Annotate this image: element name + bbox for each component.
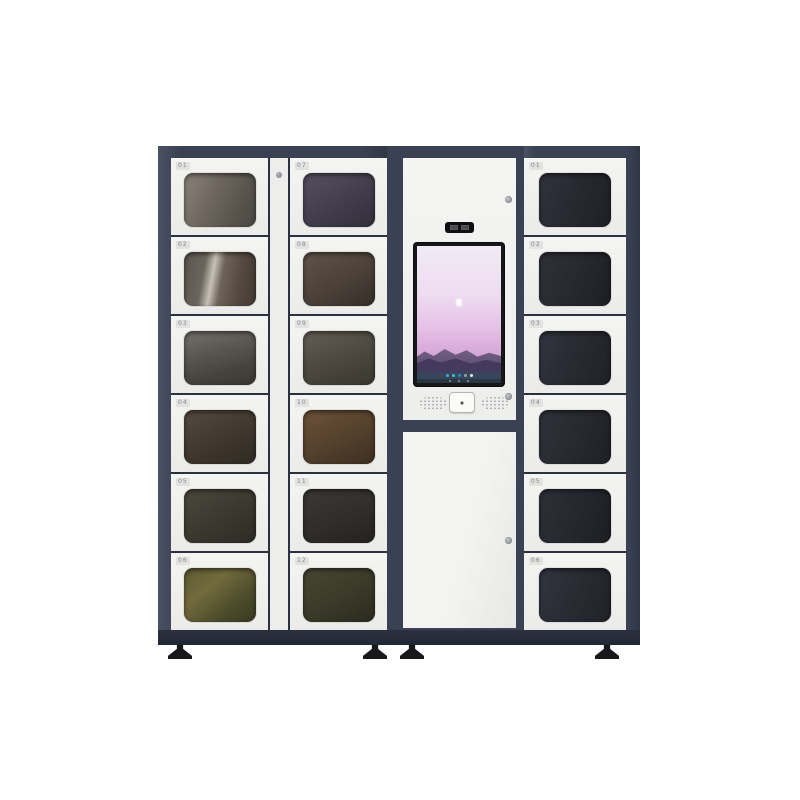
locker-number-label: 08 — [295, 241, 309, 249]
locker-number-label: 10 — [295, 399, 309, 407]
locker-door-02: 02 — [171, 235, 268, 314]
locker-door-09: 09 — [290, 314, 387, 393]
locker-column-b: 07 08 09 10 — [290, 158, 387, 630]
taskbar-app-icon — [470, 374, 473, 377]
adjustable-foot — [363, 645, 387, 659]
kiosk-service-door — [403, 432, 516, 628]
locker-column-a: 01 02 03 04 — [171, 158, 268, 630]
locker-glass-window — [303, 489, 375, 543]
locker-number-label: 07 — [295, 162, 309, 170]
screw-icon — [276, 172, 282, 178]
screen-navbar — [417, 379, 501, 383]
locker-glass-window — [539, 331, 611, 385]
locker-door-04: 04 — [171, 393, 268, 472]
locker-number-label: 01 — [529, 162, 543, 170]
locker-glass-window — [184, 489, 256, 543]
camera-module — [445, 222, 474, 233]
scanner-dot-icon — [461, 401, 464, 404]
locker-door-r04: 04 — [524, 393, 626, 472]
screen-taskbar — [417, 372, 501, 379]
locker-glass-window — [539, 173, 611, 227]
locker-number-label: 06 — [529, 557, 543, 565]
locker-number-label: 05 — [529, 478, 543, 486]
locker-number-label: 02 — [529, 241, 543, 249]
locker-number-label: 06 — [176, 557, 190, 565]
locker-number-label: 11 — [295, 478, 309, 486]
wallpaper-mountains — [417, 340, 501, 372]
camera-lens-icon — [450, 225, 458, 230]
locker-door-12: 12 — [290, 551, 387, 630]
locker-number-label: 04 — [529, 399, 543, 407]
nav-dot-icon — [467, 380, 469, 382]
speaker-grille-left — [419, 396, 447, 411]
touchscreen-display — [414, 243, 504, 386]
screw-icon — [505, 393, 512, 400]
locker-glass-window — [303, 568, 375, 622]
locker-number-label: 12 — [295, 557, 309, 565]
locker-door-r05: 05 — [524, 472, 626, 551]
scanner-button — [449, 392, 475, 413]
adjustable-foot — [595, 645, 619, 659]
locker-door-r06: 06 — [524, 551, 626, 630]
locker-glass-window — [303, 173, 375, 227]
locker-door-01: 01 — [171, 158, 268, 235]
locker-glass-window — [539, 489, 611, 543]
locker-number-label: 09 — [295, 320, 309, 328]
adjustable-foot — [168, 645, 192, 659]
locker-glass-window — [184, 331, 256, 385]
locker-door-r01: 01 — [524, 158, 626, 235]
locker-number-label: 05 — [176, 478, 190, 486]
locker-door-08: 08 — [290, 235, 387, 314]
taskbar-app-icon — [464, 374, 467, 377]
nav-dot-icon — [458, 380, 460, 382]
taskbar-app-icon — [452, 374, 455, 377]
locker-glass-window — [184, 568, 256, 622]
door-lock-icon — [505, 537, 512, 544]
product-photo: 01 02 03 04 — [0, 0, 800, 800]
right-cabinet: 01 02 03 04 05 — [524, 158, 626, 630]
locker-vending-machine: 01 02 03 04 — [158, 146, 640, 662]
nav-dot-icon — [449, 380, 451, 382]
taskbar-app-icon — [458, 374, 461, 377]
kiosk-tower-frame — [387, 146, 524, 645]
locker-glass-window — [303, 252, 375, 306]
locker-door-05: 05 — [171, 472, 268, 551]
screen-wallpaper — [417, 246, 501, 383]
locker-number-label: 02 — [176, 241, 190, 249]
locker-door-10: 10 — [290, 393, 387, 472]
locker-glass-window — [184, 173, 256, 227]
locker-door-11: 11 — [290, 472, 387, 551]
taskbar-app-icon — [446, 374, 449, 377]
right-cabinet-frame: 01 02 03 04 05 — [524, 146, 640, 645]
locker-number-label: 03 — [529, 320, 543, 328]
locker-number-label: 01 — [176, 162, 190, 170]
locker-glass-window — [539, 410, 611, 464]
locker-door-r03: 03 — [524, 314, 626, 393]
locker-number-label: 03 — [176, 320, 190, 328]
adjustable-foot — [400, 645, 424, 659]
locker-door-r02: 02 — [524, 235, 626, 314]
locker-glass-window — [303, 410, 375, 464]
column-divider-strip — [268, 158, 290, 630]
locker-glass-window — [303, 331, 375, 385]
locker-door-07: 07 — [290, 158, 387, 235]
locker-glass-window — [184, 252, 256, 306]
locker-door-06: 06 — [171, 551, 268, 630]
base-frame-bar — [158, 630, 640, 645]
locker-glass-window — [539, 252, 611, 306]
screw-icon — [505, 196, 512, 203]
indicator-window-icon — [461, 225, 469, 230]
kiosk-upper-panel — [403, 158, 516, 420]
wallpaper-glyph-icon — [457, 299, 462, 306]
locker-glass-window — [539, 568, 611, 622]
left-cabinet-frame: 01 02 03 04 — [158, 146, 387, 645]
locker-number-label: 04 — [176, 399, 190, 407]
locker-glass-window — [184, 410, 256, 464]
locker-door-03: 03 — [171, 314, 268, 393]
left-cabinet: 01 02 03 04 — [171, 158, 387, 630]
